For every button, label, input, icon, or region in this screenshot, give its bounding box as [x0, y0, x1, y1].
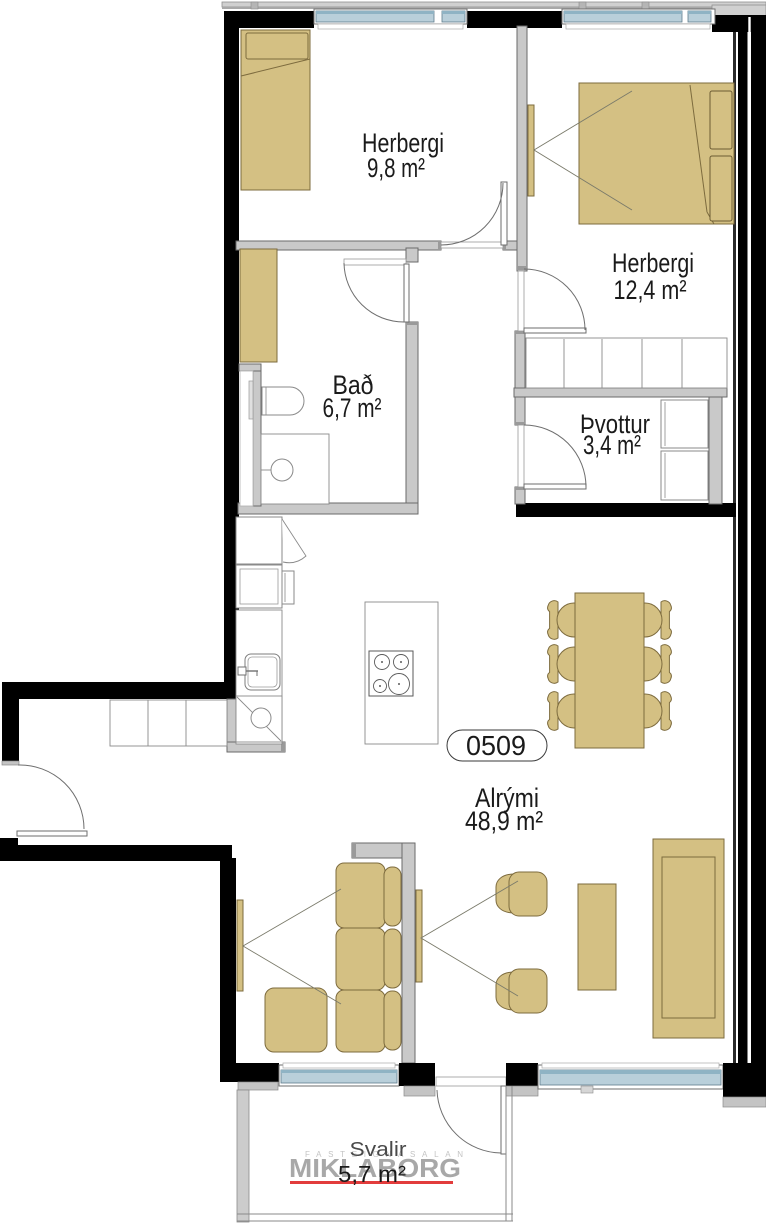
svg-text:12,4 m²: 12,4 m²: [614, 275, 687, 305]
svg-text:3,4 m²: 3,4 m²: [583, 430, 641, 460]
svg-text:Herbergi: Herbergi: [612, 248, 694, 278]
svg-text:6,7 m²: 6,7 m²: [323, 393, 382, 423]
svg-text:Svalir: Svalir: [350, 1139, 407, 1161]
svg-text:9,8 m²: 9,8 m²: [367, 153, 425, 183]
svg-text:48,9 m²: 48,9 m²: [465, 806, 543, 836]
svg-text:5,7 m²: 5,7 m²: [338, 1161, 406, 1187]
svg-text:0509: 0509: [466, 730, 526, 761]
